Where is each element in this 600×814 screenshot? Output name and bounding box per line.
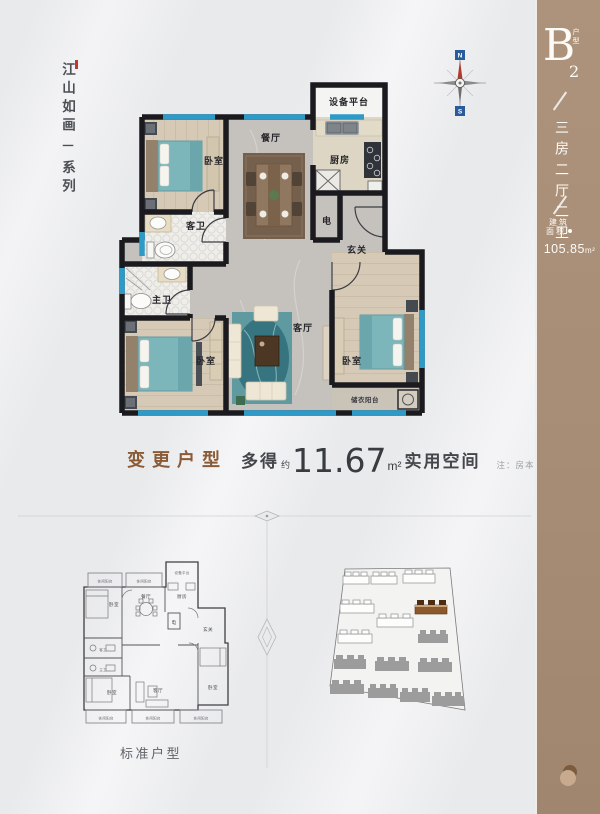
std-label-living: 客厅 <box>153 687 163 694</box>
std-label-elec: 电 <box>172 619 177 625</box>
std-label-entry: 玄关 <box>203 626 213 633</box>
std-label-bedroom-right: 卧室 <box>208 684 218 691</box>
sidebar-slash-top <box>553 91 567 110</box>
headline-value: 11.67 <box>292 447 386 475</box>
room-label-guest-bath: 客卫 <box>185 220 206 231</box>
room-label-elec: 电 <box>322 215 332 226</box>
headline: 变更户型 多得 约 11.67 m² 实用空间 注：房本面积不变 <box>127 446 467 475</box>
compass-west-point <box>438 81 458 86</box>
ac-unit <box>398 390 418 409</box>
tagline-accent-mark <box>75 60 78 69</box>
area-caption-line1: 建筑 <box>549 218 569 227</box>
room-label-entry: 玄关 <box>347 244 367 255</box>
std-label-guest-bath: 客卫 <box>99 647 107 652</box>
std-label-equipment: 设备平台 <box>174 570 189 575</box>
site-building-highlight <box>415 600 447 614</box>
area-caption: 建筑 面积 <box>537 218 581 236</box>
area-caption-line2: 面积 <box>546 227 566 236</box>
dining-table <box>243 153 305 239</box>
std-label-balcony-bl: 休闲阳台 <box>98 716 113 721</box>
area-value: 105.85m² <box>537 242 600 256</box>
std-label-bedroom-left: 卧室 <box>107 689 117 696</box>
series-tagline-dash: 一 <box>61 140 73 156</box>
unit-badge-caption: 户型 <box>570 28 580 46</box>
std-label-balcony-tm: 休闲阳台 <box>136 579 151 584</box>
room-label-bedroom-right: 卧室 <box>342 355 362 366</box>
std-label-kitchen: 厨房 <box>177 593 187 600</box>
headline-approx: 约 <box>281 458 290 475</box>
room-label-dining: 餐厅 <box>260 132 281 143</box>
divider-diamond-mid <box>258 619 276 655</box>
compass-hub-dot <box>459 82 462 85</box>
series-tagline-sub: 系列 <box>60 160 75 197</box>
compass-south-label: S <box>458 109 463 116</box>
unit-badge: B 户型 2 <box>537 22 581 84</box>
compass-east-point <box>462 81 482 86</box>
ornament-circle-light <box>560 770 576 786</box>
series-tagline-main: 江山如画 <box>60 62 75 136</box>
room-label-bedroom-top: 卧室 <box>204 155 224 166</box>
series-tagline: 江山如画一系列 <box>57 62 77 197</box>
unit-info-sidebar: B 户型 2 三房二厅二卫 建筑 面积 105.85m² <box>535 0 600 814</box>
main-floor-plan: 设备平台 厨房 餐厅 卧室 客卫 电 玄关 主卫 卧室 客厅 卧室 储衣阳台 <box>115 80 430 420</box>
room-label-equipment: 设备平台 <box>329 96 369 107</box>
site-plan <box>322 556 472 718</box>
area-value-unit: m² <box>585 246 595 255</box>
room-label-storage-balcony: 储衣阳台 <box>350 395 379 404</box>
room-label-living: 客厅 <box>292 322 313 333</box>
std-label-master-bath: 主卫 <box>99 667 107 672</box>
compass: N S <box>432 50 488 116</box>
area-value-number: 105.85 <box>544 242 585 256</box>
standard-plan-caption: 标准户型 <box>120 743 210 762</box>
area-caption-dot <box>568 229 572 233</box>
sidebar-ornament <box>537 763 600 793</box>
standard-floor-plan: 休闲阳台 休闲阳台 设备平台 厨房 卧室 餐厅 电 玄关 客卫 主卫 卧室 客厅… <box>78 555 238 730</box>
headline-unit: m² <box>388 459 402 473</box>
std-label-balcony-bm: 休闲阳台 <box>145 716 160 721</box>
room-label-master-bath: 主卫 <box>152 294 172 305</box>
unit-number: 2 <box>569 62 579 81</box>
compass-north-label: N <box>458 53 463 60</box>
std-label-balcony-tl: 休闲阳台 <box>97 579 112 584</box>
std-label-dining: 餐厅 <box>141 593 151 600</box>
headline-gain-suffix: 实用空间 <box>405 447 481 475</box>
headline-gain-prefix: 多得 <box>241 447 279 475</box>
room-label-kitchen: 厨房 <box>330 154 350 165</box>
std-label-balcony-br: 休闲阳台 <box>193 716 208 721</box>
std-label-bedroom-top: 卧室 <box>109 601 119 608</box>
room-label-bedroom-left: 卧室 <box>196 355 216 366</box>
headline-label: 变更户型 <box>127 446 227 475</box>
